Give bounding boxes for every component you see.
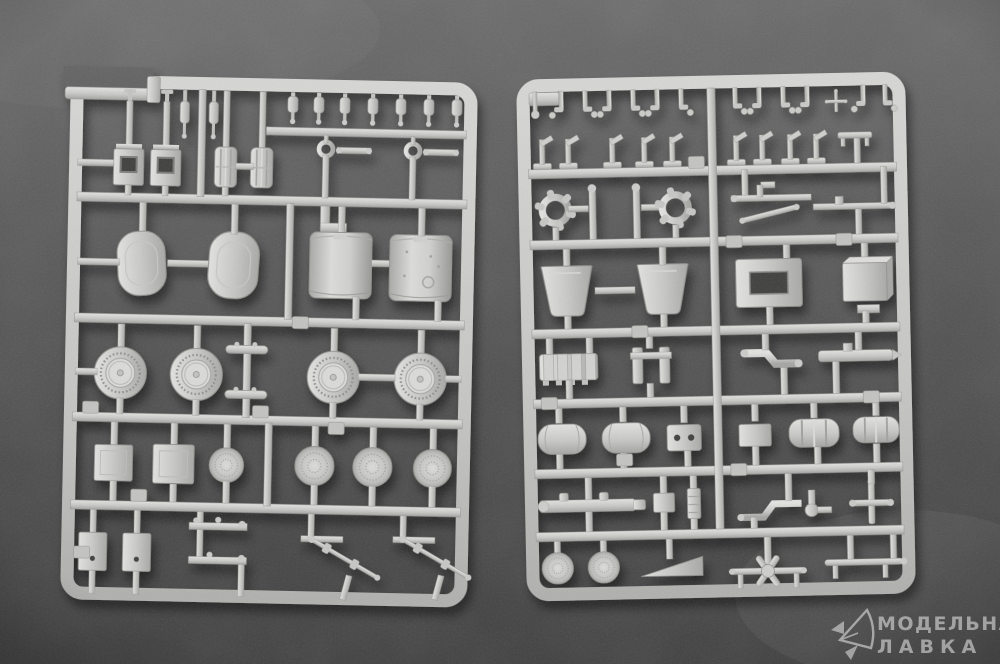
watermark-line2: ЛАВКА (877, 636, 982, 658)
vignette (0, 0, 1000, 664)
watermark-line1: МОДЕЛЬНАЯ (877, 613, 1000, 635)
photo-scene: МОДЕЛЬНАЯ ЛАВКА (0, 0, 1000, 664)
sprue-photo: МОДЕЛЬНАЯ ЛАВКА (0, 0, 1000, 664)
